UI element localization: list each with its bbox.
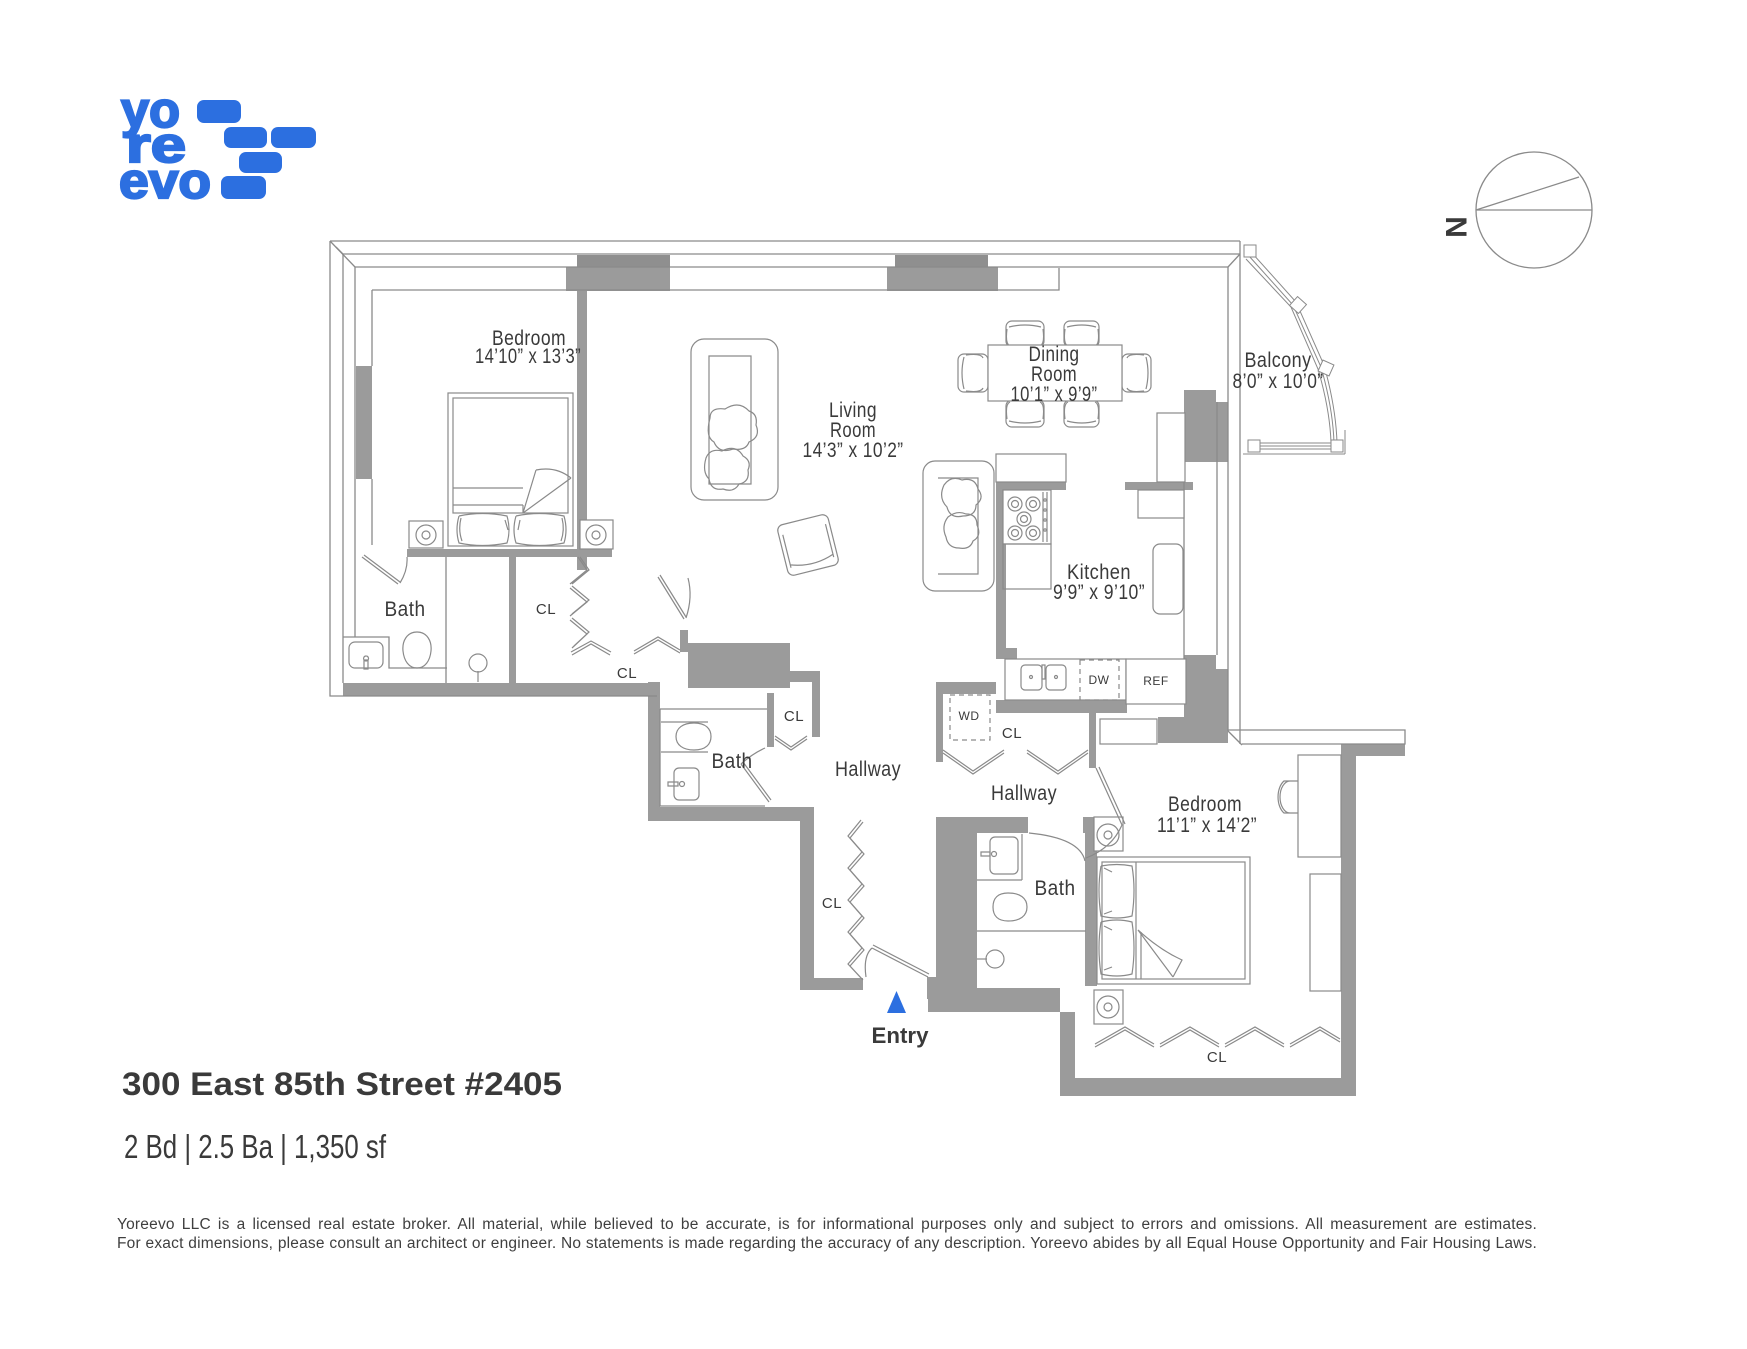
- svg-text:REF: REF: [1143, 674, 1169, 688]
- svg-text:Bath: Bath: [712, 750, 753, 773]
- svg-text:8’0” x 10’0”: 8’0” x 10’0”: [1233, 370, 1324, 393]
- svg-text:9’9” x 9’10”: 9’9” x 9’10”: [1053, 581, 1145, 604]
- svg-text:CL: CL: [1207, 1049, 1227, 1066]
- svg-text:Bath: Bath: [385, 598, 426, 621]
- svg-text:Balcony: Balcony: [1245, 349, 1312, 372]
- svg-text:CL: CL: [822, 895, 842, 912]
- svg-text:DW: DW: [1089, 673, 1110, 687]
- svg-text:Hallway: Hallway: [835, 758, 901, 781]
- svg-text:300 East 85th Street #2405: 300 East 85th Street #2405: [122, 1066, 562, 1102]
- svg-text:WD: WD: [959, 709, 980, 723]
- svg-text:Entry: Entry: [872, 1023, 930, 1048]
- svg-text:2 Bd | 2.5 Ba | 1,350 sf: 2 Bd | 2.5 Ba | 1,350 sf: [124, 1128, 387, 1165]
- svg-text:CL: CL: [617, 665, 637, 682]
- svg-text:CL: CL: [1002, 725, 1022, 742]
- svg-text:14’10” x 13’3”: 14’10” x 13’3”: [475, 345, 581, 368]
- svg-text:10’1” x 9’9”: 10’1” x 9’9”: [1011, 383, 1098, 406]
- svg-text:11’1” x 14’2”: 11’1” x 14’2”: [1157, 814, 1257, 837]
- svg-text:evo: evo: [119, 153, 211, 209]
- svg-text:Bath: Bath: [1035, 877, 1076, 900]
- svg-text:CL: CL: [536, 601, 556, 618]
- svg-text:14’3” x 10’2”: 14’3” x 10’2”: [803, 439, 904, 462]
- svg-text:Bedroom: Bedroom: [1168, 793, 1242, 816]
- svg-text:CL: CL: [784, 708, 804, 725]
- svg-text:Hallway: Hallway: [991, 782, 1057, 805]
- svg-text:N: N: [1441, 216, 1474, 238]
